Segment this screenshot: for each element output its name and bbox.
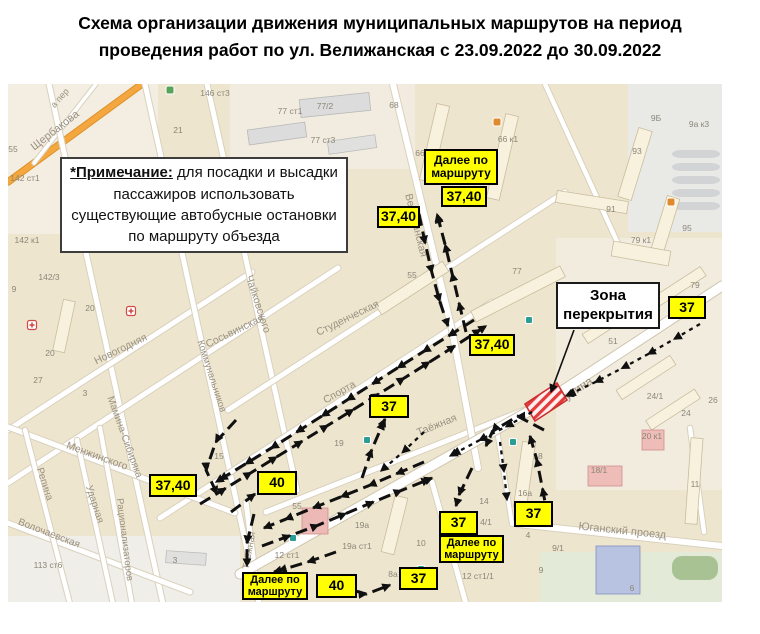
building-number-label: 11 (691, 479, 700, 489)
building-number-label: 95 (682, 223, 692, 233)
building-number-label: 4 (526, 530, 531, 540)
title-line-1: Схема организации движения муниципальных… (8, 10, 752, 37)
building-number-label: 19а ст1 (342, 541, 372, 551)
route-label: 37 (668, 296, 706, 319)
route-label: Далее по маршруту (424, 149, 498, 185)
building-number-label: 55 (8, 144, 18, 154)
building-number-label: 77/2 (317, 101, 334, 111)
building-number-label: 18/1 (591, 465, 608, 475)
building-number-label: 79 (690, 280, 700, 290)
building-number-label: 55 (292, 501, 302, 511)
building-number-label: 6 (630, 583, 635, 593)
building-number-label: 93 (632, 146, 642, 156)
building-number-label: 3 (173, 555, 178, 565)
building-number-label: 16а (518, 488, 532, 498)
map-zone (672, 163, 720, 171)
building-number-label: 26 (708, 395, 718, 405)
building-number-label: 77 ст3 (311, 135, 336, 145)
building-number-label: 19а (355, 520, 369, 530)
page-title: Схема организации движения муниципальных… (8, 10, 752, 64)
building-number-label: 142/3 (38, 272, 60, 282)
fuel-icon (166, 86, 174, 94)
bus-stop-icon (526, 317, 533, 324)
building-number-label: 9 (539, 565, 544, 575)
route-label: 37 (369, 395, 409, 418)
building-number-label: 9/1 (552, 543, 564, 553)
title-line-2: проведения работ по ул. Велижанская с 23… (8, 37, 752, 64)
route-label: 37,40 (469, 334, 515, 356)
building-number-label: 20 (45, 348, 55, 358)
map-zone (672, 176, 720, 184)
note-box: *Примечание: для посадки и высадки пасса… (60, 157, 348, 253)
building-number-label: 8а (388, 569, 398, 579)
cart-icon (667, 198, 675, 206)
building-number-label: 12 ст1/1 (462, 571, 494, 581)
route-label: 37 (439, 511, 478, 535)
map-zone (672, 556, 718, 580)
building-number-label: 21 (173, 125, 183, 135)
building-number-label: 66 к1 (498, 134, 519, 144)
building-number-label: 9а к3 (689, 119, 710, 129)
bus-stop-icon (510, 439, 517, 446)
building-number-label: 19 (334, 438, 344, 448)
cart-icon (493, 118, 501, 126)
map-zone (672, 202, 720, 210)
building-number-label: 146 ст3 (200, 88, 230, 98)
building-number-label: 55 (407, 270, 417, 280)
building-number-label: 14 (479, 496, 489, 506)
building-number-label: 51 (608, 336, 618, 346)
building-number-label: 142 к1 (15, 235, 40, 245)
closure-callout-line-1: Зона (590, 287, 626, 306)
building-number-label: 142 ст1 (10, 173, 40, 183)
route-label: 40 (257, 471, 297, 495)
closure-callout: Зона перекрытия (556, 282, 660, 329)
closure-callout-line-2: перекрытия (563, 306, 653, 325)
building-number-label: 9 (12, 284, 17, 294)
building-number-label: 24/1 (647, 391, 664, 401)
route-label: 37,40 (377, 206, 420, 228)
building-number-label: 24 (681, 408, 691, 418)
bus-stop-icon (290, 535, 297, 542)
building-number-label: 91 (606, 204, 616, 214)
map-zone (672, 189, 720, 197)
building-number-label: 20 (85, 303, 95, 313)
building-number-label: 68 (389, 100, 399, 110)
building-number-label: 20 к1 (642, 431, 663, 441)
route-label: 37,40 (149, 474, 197, 497)
route-label: Далее по маршруту (439, 535, 504, 563)
route-label: 37 (514, 501, 553, 527)
route-label: 37,40 (441, 186, 487, 207)
building-number-label: 27 (33, 375, 43, 385)
building-number-label: 15 (214, 451, 224, 461)
bus-stop-icon (364, 437, 371, 444)
building-number-label: 4/1 (480, 517, 492, 527)
building-number-label: 77 (512, 266, 522, 276)
building-number-label: 10 (416, 538, 426, 548)
note-heading: *Примечание: (70, 164, 173, 181)
building-number-label: 79 к1 (631, 235, 652, 245)
route-label: Далее по маршруту (242, 572, 308, 600)
map-zone (672, 150, 720, 158)
route-label: 40 (316, 574, 357, 598)
scheme-page: Схема организации движения муниципальных… (0, 0, 760, 634)
building-number-label: 3 (83, 388, 88, 398)
building-number-label: 9Б (651, 113, 662, 123)
route-label: 37 (399, 567, 438, 590)
building-number-label: 77 ст1 (278, 106, 303, 116)
building-number-label: 113 ст6 (34, 560, 63, 570)
building-number-label: 12 ст1 (275, 550, 300, 560)
